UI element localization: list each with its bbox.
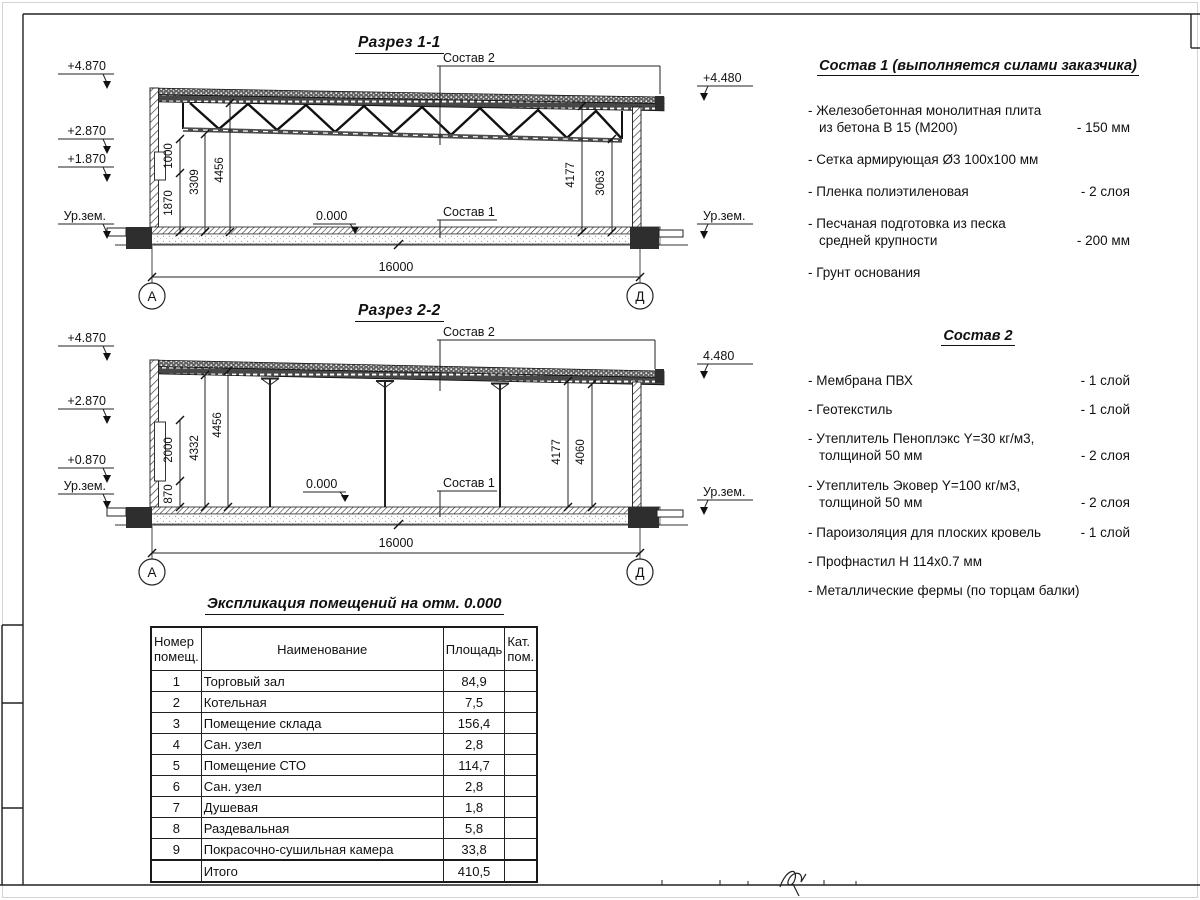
table-row: 3Помещение склада156,4: [151, 713, 537, 734]
item-value: - 2 слоя: [1081, 183, 1130, 200]
list-item: - Грунт основания: [808, 264, 1158, 281]
right-ledge: [657, 510, 683, 517]
roof-fascia: [655, 369, 664, 383]
column-header-name: Наименование: [201, 627, 443, 671]
dimension-label: 870: [163, 484, 175, 503]
list-item: - Песчаная подготовка из песка средней к…: [808, 215, 1158, 249]
table-row: 7Душевая1,8: [151, 797, 537, 818]
item-text: - Профнастил Н 114х0.7 мм: [808, 553, 982, 570]
drawing-sheet: +4.870 +2.870 +1.870 Ур.зем. +4.480 Ур.з…: [0, 0, 1200, 900]
item-text: - Мембрана ПВХ: [808, 372, 913, 389]
dimension-label: 4332: [189, 435, 201, 461]
table-row: 6Сан. узел2,8: [151, 776, 537, 797]
item-text: - Песчаная подготовка из песка: [808, 215, 1006, 232]
elevation-label: +0.870: [67, 453, 106, 467]
elevation-label: +2.870: [67, 394, 106, 408]
list-item: - Сетка армирующая Ø3 100х100 мм: [808, 151, 1158, 168]
list-item: - Геотекстиль - 1 слой: [808, 401, 1158, 418]
table-row-total: Итого410,5: [151, 860, 537, 882]
explication-table: Номер помещ. Наименование Площадь Кат. п…: [150, 626, 538, 883]
span-dimension: 16000 А Д: [139, 526, 653, 585]
leader-label: Состав 2: [443, 325, 495, 339]
sostav2-block: Состав 2 - Мембрана ПВХ - 1 слой - Геоте…: [798, 328, 1158, 611]
right-ledge: [659, 230, 683, 237]
column-header-num: Номер помещ.: [151, 627, 201, 671]
list-item: - Железобетонная монолитная плита из бет…: [808, 102, 1158, 136]
elevation-label: +4.870: [67, 59, 106, 73]
elevation-marks-left: +4.870 +2.870 +0.870 Ур.зем.: [58, 331, 114, 509]
dimension-label: 1000: [163, 143, 175, 169]
elevation-label: +4.480: [703, 71, 742, 85]
elevation-label: +2.870: [67, 124, 106, 138]
item-text: - Геотекстиль: [808, 401, 892, 418]
column: [376, 381, 394, 508]
item-value: - 2 слоя: [1081, 447, 1130, 464]
elevation-label: 4.480: [703, 349, 734, 363]
sostav1-title: Состав 1 (выполняется силами заказчика): [817, 58, 1139, 76]
column: [261, 378, 279, 507]
right-footing: [630, 227, 659, 249]
elevation-marks-left: +4.870 +2.870 +1.870 Ур.зем.: [58, 59, 114, 239]
elevation-marks-right: 4.480 Ур.зем.: [697, 349, 753, 515]
item-value: - 200 мм: [1077, 232, 1130, 249]
table-row: 2Котельная7,5: [151, 692, 537, 713]
dimension-label: 1870: [163, 190, 175, 216]
axis-label: А: [147, 289, 156, 304]
list-item: - Пароизоляция для плоских кровель - 1 с…: [808, 524, 1158, 541]
dimension-label: 3063: [595, 170, 607, 196]
table-row: 5Помещение СТО114,7: [151, 755, 537, 776]
item-text: - Железобетонная монолитная плита: [808, 102, 1041, 119]
elevation-label: +1.870: [67, 152, 106, 166]
ground-level-label: Ур.зем.: [703, 209, 745, 223]
dimension-label: 4456: [212, 412, 224, 438]
explication-title: Экспликация помещений на отм. 0.000: [205, 595, 504, 615]
item-value: - 1 слой: [1081, 524, 1130, 541]
ground-level-label: Ур.зем.: [64, 479, 106, 493]
item-text: толщиной 50 мм: [808, 447, 1034, 464]
dimension-label: 2000: [163, 437, 175, 463]
list-item: - Мембрана ПВХ - 1 слой: [808, 372, 1158, 389]
list-item: - Профнастил Н 114х0.7 мм: [808, 553, 1158, 570]
list-item: - Утеплитель Эковер Y=100 кг/м3, толщино…: [808, 477, 1158, 511]
ground-level-label: Ур.зем.: [703, 485, 745, 499]
table-row: 1Торговый зал84,9: [151, 671, 537, 692]
bottom-tick-marks: [662, 880, 856, 885]
item-value: - 1 слой: [1081, 372, 1130, 389]
left-ledge: [107, 508, 126, 516]
leader-label: Состав 1: [443, 476, 495, 490]
table-row: 8Раздевальная5,8: [151, 818, 537, 839]
section-1-title: Разрез 1-1: [355, 34, 444, 54]
span-dimension-label: 16000: [379, 536, 414, 550]
item-text: - Грунт основания: [808, 264, 920, 281]
item-value: - 2 слоя: [1081, 494, 1130, 511]
right-wall: [633, 107, 642, 232]
floor-bedding: [150, 514, 660, 524]
list-item: - Металлические фермы (по торцам балки): [808, 582, 1158, 599]
right-wall: [633, 382, 642, 507]
elevation-label: +4.870: [67, 331, 106, 345]
elevation-marks-right: +4.480 Ур.зем.: [697, 71, 753, 239]
axis-label: Д: [635, 289, 644, 304]
item-text: из бетона В 15 (М200): [808, 119, 1041, 136]
ground-level-label: Ур.зем.: [64, 209, 106, 223]
item-text: - Металлические фермы (по торцам балки): [808, 582, 1080, 599]
item-text: - Пленка полиэтиленовая: [808, 183, 969, 200]
sostav2-title: Состав 2: [941, 328, 1014, 346]
leader-label: Состав 1: [443, 205, 495, 219]
span-dimension: 16000 А Д: [139, 246, 653, 309]
span-dimension-label: 16000: [379, 260, 414, 274]
item-value: - 1 слой: [1081, 401, 1130, 418]
axis-label: А: [147, 565, 156, 580]
table-row: 9Покрасочно-сушильная камера33,8: [151, 839, 537, 861]
item-text: - Сетка армирующая Ø3 100х100 мм: [808, 151, 1038, 168]
table-row: 4Сан. узел2,8: [151, 734, 537, 755]
table-header-row: Номер помещ. Наименование Площадь Кат. п…: [151, 627, 537, 671]
sostav1-block: Состав 1 (выполняется силами заказчика) …: [798, 58, 1158, 296]
column-header-area: Площадь: [443, 627, 505, 671]
dimension-label: 3309: [189, 169, 201, 195]
left-footing: [126, 227, 152, 249]
signature-squiggle: [780, 871, 806, 896]
axis-label: Д: [635, 565, 644, 580]
right-footing: [628, 507, 659, 528]
column-header-cat: Кат. пом.: [505, 627, 537, 671]
section-2-2-drawing: +4.870 +2.870 +0.870 Ур.зем. 4.480 Ур.зе…: [58, 325, 753, 585]
item-text: - Утеплитель Пеноплэкс Y=30 кг/м3,: [808, 430, 1034, 447]
item-text: - Утеплитель Эковер Y=100 кг/м3,: [808, 477, 1020, 494]
item-text: толщиной 50 мм: [808, 494, 1020, 511]
item-value: - 150 мм: [1077, 119, 1130, 136]
dimension-label: 4177: [551, 439, 563, 465]
dimension-label: 4177: [565, 162, 577, 188]
left-footing: [126, 507, 152, 528]
vertical-dimensions: 870 2000 4332 4456 4177 4060: [163, 367, 596, 511]
item-text: - Пароизоляция для плоских кровель: [808, 524, 1041, 541]
zero-level-label: 0.000: [316, 209, 347, 223]
section-1-1-drawing: +4.870 +2.870 +1.870 Ур.зем. +4.480 Ур.з…: [58, 51, 753, 309]
leader-label: Состав 2: [443, 51, 495, 65]
dimension-label: 4456: [214, 157, 226, 183]
item-text: средней крупности: [808, 232, 1006, 249]
zero-level-mark: 0.000: [303, 477, 349, 502]
zero-level-label: 0.000: [306, 477, 337, 491]
roof-fascia: [655, 96, 664, 110]
list-item: - Пленка полиэтиленовая - 2 слоя: [808, 183, 1158, 200]
dimension-label: 4060: [575, 439, 587, 465]
section-2-title: Разрез 2-2: [355, 302, 444, 322]
list-item: - Утеплитель Пеноплэкс Y=30 кг/м3, толщи…: [808, 430, 1158, 464]
